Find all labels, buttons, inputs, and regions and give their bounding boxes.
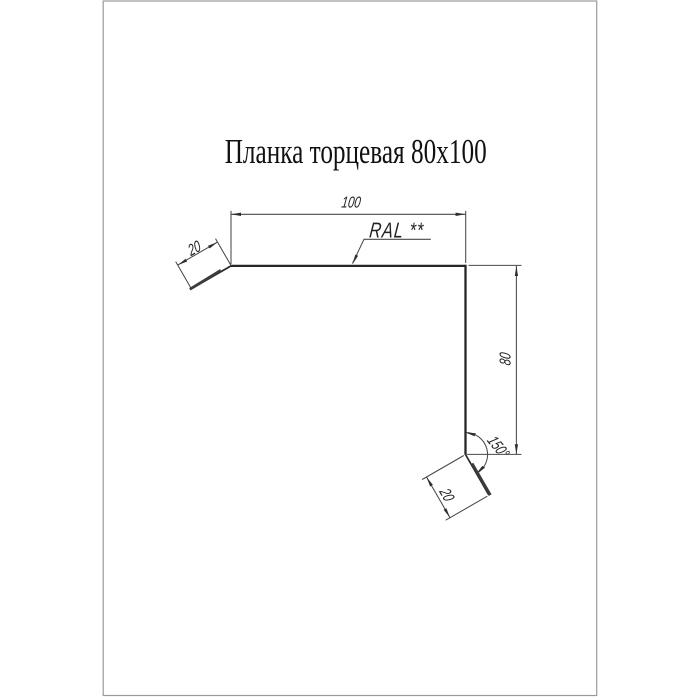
svg-text:RAL **: RAL ** (368, 220, 424, 244)
svg-text:100: 100 (341, 193, 363, 211)
svg-text:Планка торцевая 80х100: Планка торцевая 80х100 (225, 132, 487, 171)
